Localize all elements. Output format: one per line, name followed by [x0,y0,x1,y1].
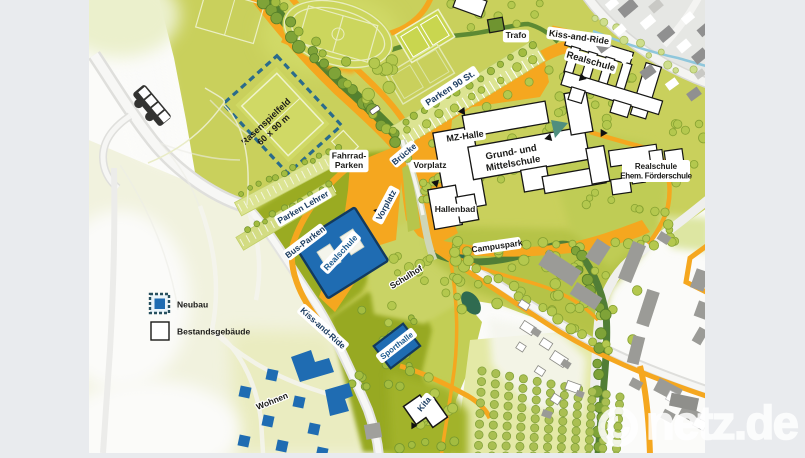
svg-text:Ehem. Förderschule: Ehem. Förderschule [620,172,692,181]
svg-text:Neubau: Neubau [177,300,208,310]
svg-text:Fahrrad-: Fahrrad- [332,150,367,160]
svg-text:Parken: Parken [335,160,363,170]
svg-text:Bestandsgebäude: Bestandsgebäude [177,327,250,337]
svg-text:Realschule: Realschule [635,162,678,171]
svg-text:netz.de: netz.de [646,396,798,449]
svg-text:Trafo: Trafo [506,30,527,40]
svg-text:Vorplatz: Vorplatz [414,160,447,170]
svg-text:Hallenbad: Hallenbad [435,204,476,214]
